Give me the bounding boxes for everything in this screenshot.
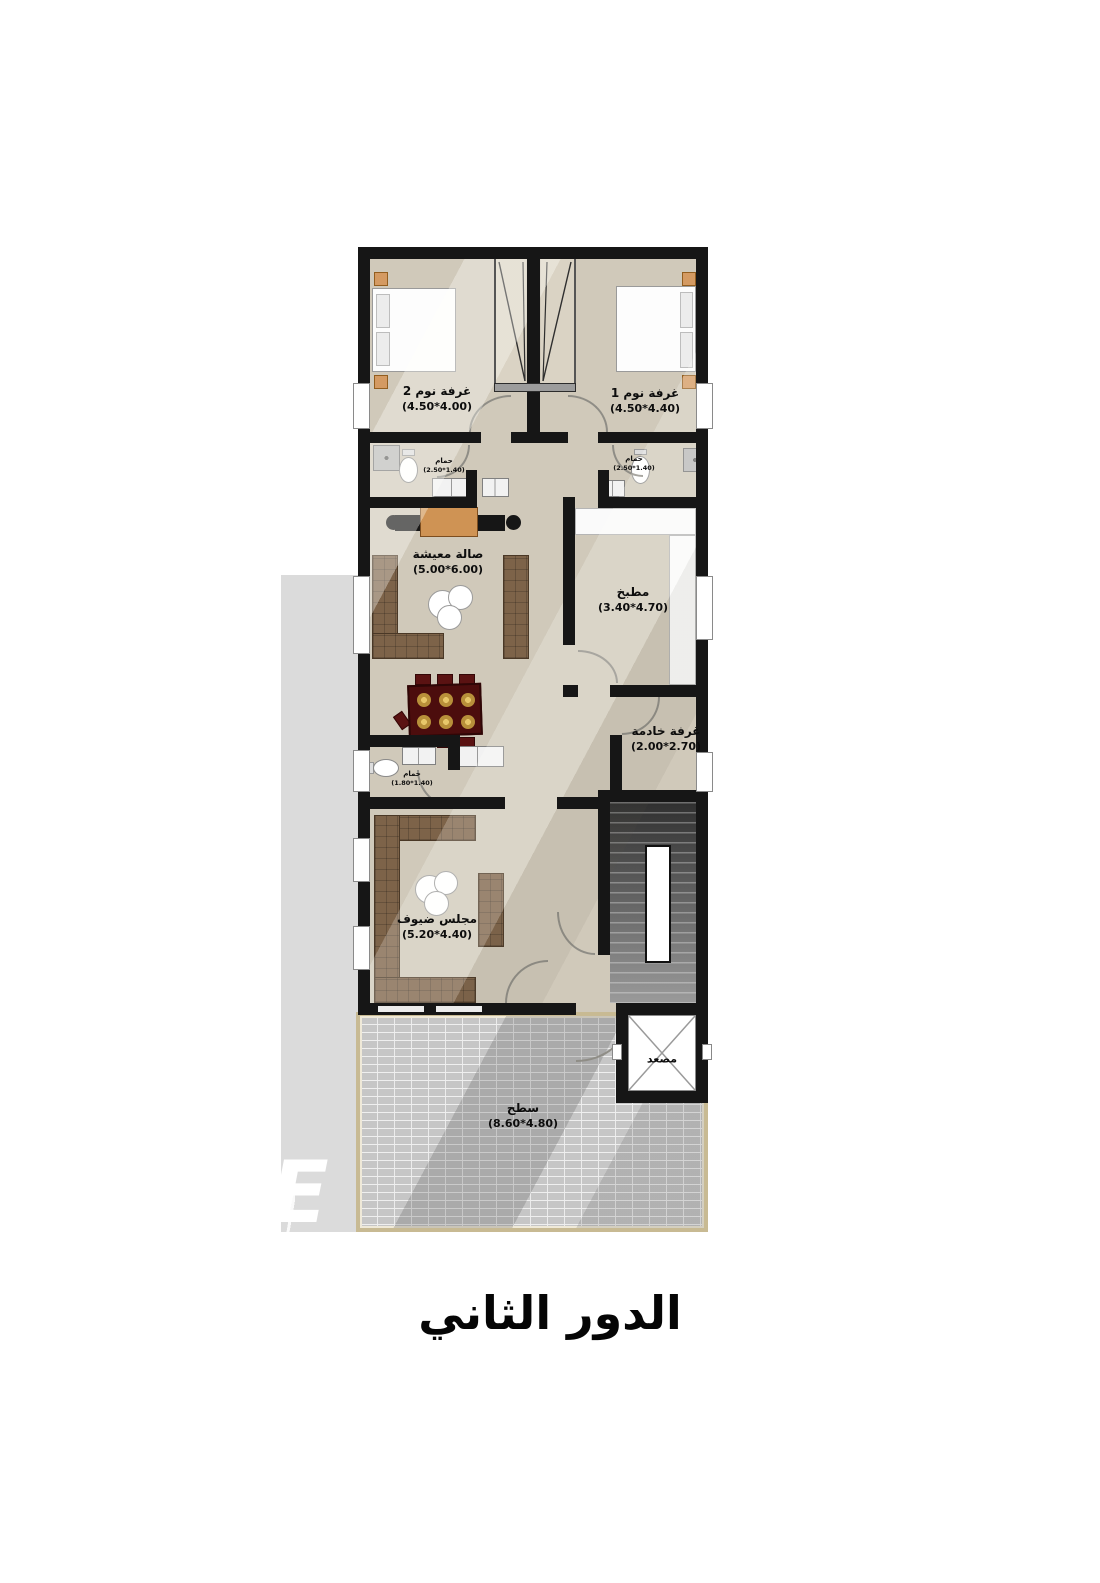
pillow [376,294,390,328]
room-dims: (4.50*4.40) [610,402,680,416]
coffee-table [437,605,462,630]
room-dims: (5.20*4.40) [397,928,477,942]
room-label-bedroom2: غرفة نوم 2 (4.50*4.00) [402,384,472,414]
sofa [372,633,444,659]
plate [461,715,475,729]
nightstand [374,375,388,389]
nightstand [374,272,388,286]
room-dims: (2.00*2.70) [631,740,701,754]
room-label-bedroom1: غرفة نوم 1 (4.50*4.40) [610,386,680,416]
room-label-majlis: مجلس ضيوف (5.20*4.40) [397,912,477,942]
window [353,926,370,970]
door-arc-bedroom1 [568,395,608,432]
kitchen-counter [575,508,696,535]
room-name: حمام [391,770,432,779]
wall-segment [527,259,540,385]
staircase [610,802,696,1003]
wall-segment [527,392,540,433]
closet-shelf [494,383,576,392]
nightstand [682,272,696,286]
window-slit [378,1006,424,1012]
sofa [374,977,476,1003]
wall-segment [598,790,696,802]
room-dims: (2.50*1.40) [423,466,464,474]
window [696,752,713,792]
wall-segment [370,735,460,747]
room-dims: (8.60*4.80) [488,1117,558,1131]
plate [417,715,431,729]
wall-segment [370,497,477,508]
window [696,576,713,640]
pillow [376,332,390,366]
wall-segment [466,470,477,497]
elevator-shaft: مصعد [616,1003,708,1103]
wall-segment [370,797,505,809]
wall-segment [610,735,622,790]
window [353,576,370,654]
room-name: غرفة نوم 1 [610,386,680,402]
nightstand [682,375,696,389]
window [353,383,370,429]
door-arc-majlis [505,960,548,1003]
room-dims: (4.50*4.00) [402,400,472,414]
pillow [680,332,693,368]
shower-tray [373,445,400,471]
floor-title: الدور الثاني [0,1286,1100,1340]
room-label-bath2: حمام (2.50*1.40) [423,457,464,475]
wall-segment [511,432,568,443]
wall-segment [598,470,609,497]
watermark-letter: E [270,1150,329,1236]
room-dims: (1.80*1.40) [391,779,432,787]
room-dims: (3.40*4.70) [598,601,668,615]
room-label-bath1: حمام (2.50*1.40) [613,455,654,473]
floorplan-body: غرفة نوم 2 (4.50*4.00) غرفة نوم 1 (4.50*… [358,247,708,1015]
room-label-maid: غرفة خادمة (2.00*2.70) [631,724,701,754]
dining-table [407,683,483,738]
vanity-sink [402,747,436,765]
wall-segment [598,802,610,955]
room-name: مجلس ضيوف [397,912,477,928]
wall-segment [610,685,622,697]
wall-segment [557,797,598,809]
floorplan-canvas: E [0,0,1100,1583]
room-name: حمام [613,455,654,464]
wall-segment [598,497,696,508]
room-dims: (5.00*6.00) [413,563,484,577]
plate [461,693,475,707]
dining-chair [415,674,431,685]
elevator-cabin: مصعد [628,1015,696,1091]
elevator-door-mark [702,1044,712,1060]
window [353,750,370,792]
wall-segment [618,685,696,697]
wall-segment [358,247,708,259]
room-label-bath3: حمام (1.80*1.40) [391,770,432,788]
speaker [386,515,401,530]
tv-cabinet [420,507,478,537]
vanity-sink [482,478,509,497]
shadow-block [281,575,358,1232]
elevator-door-mark [612,1044,622,1060]
kitchen-counter [669,535,696,685]
toilet-tank [402,449,415,456]
toilet [399,457,418,483]
sofa [503,555,529,659]
room-label-kitchen: مطبخ (3.40*4.70) [598,585,668,615]
window [353,838,370,882]
door-arc-bedroom2 [469,395,511,432]
room-label-living: صالة معيشة (5.00*6.00) [413,547,484,577]
pillow [680,292,693,328]
stair-void [645,845,671,963]
window-slit [436,1006,482,1012]
plate [417,693,431,707]
room-name: غرفة نوم 2 [402,384,472,400]
wall-segment [563,497,575,645]
closet-edge [574,259,576,383]
plate [439,715,453,729]
speaker [506,515,521,530]
room-name: صالة معيشة [413,547,484,563]
wall-segment [598,432,696,443]
wall-segment [563,685,578,697]
room-name: حمام [423,457,464,466]
elevator-label: مصعد [647,1052,677,1065]
sofa [478,873,504,947]
window [696,383,713,429]
sofa [374,815,400,1003]
plate [439,693,453,707]
room-name: غرفة خادمة [631,724,701,740]
room-label-roof: سطح (8.60*4.80) [488,1101,558,1131]
door-arc-kitchen [578,650,618,683]
room-name: سطح [488,1101,558,1117]
room-name: مطبخ [598,585,668,601]
closet-edge [494,259,496,383]
wall-segment [448,735,460,770]
wall-segment [370,432,481,443]
room-dims: (2.50*1.40) [613,464,654,472]
door-arc-hall [557,912,595,955]
